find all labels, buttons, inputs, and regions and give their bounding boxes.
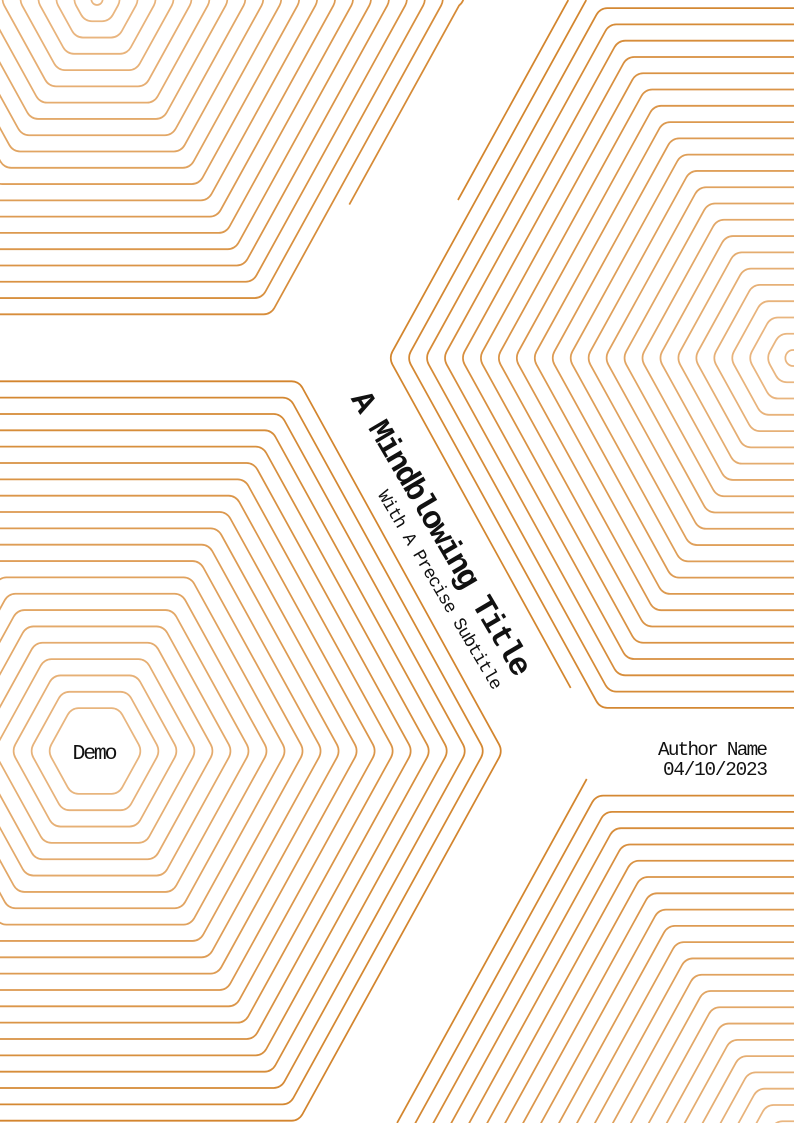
svg-text:Demo: Demo xyxy=(73,742,118,766)
svg-text:Author Name: Author Name xyxy=(658,739,768,761)
svg-text:04/10/2023: 04/10/2023 xyxy=(663,759,768,781)
